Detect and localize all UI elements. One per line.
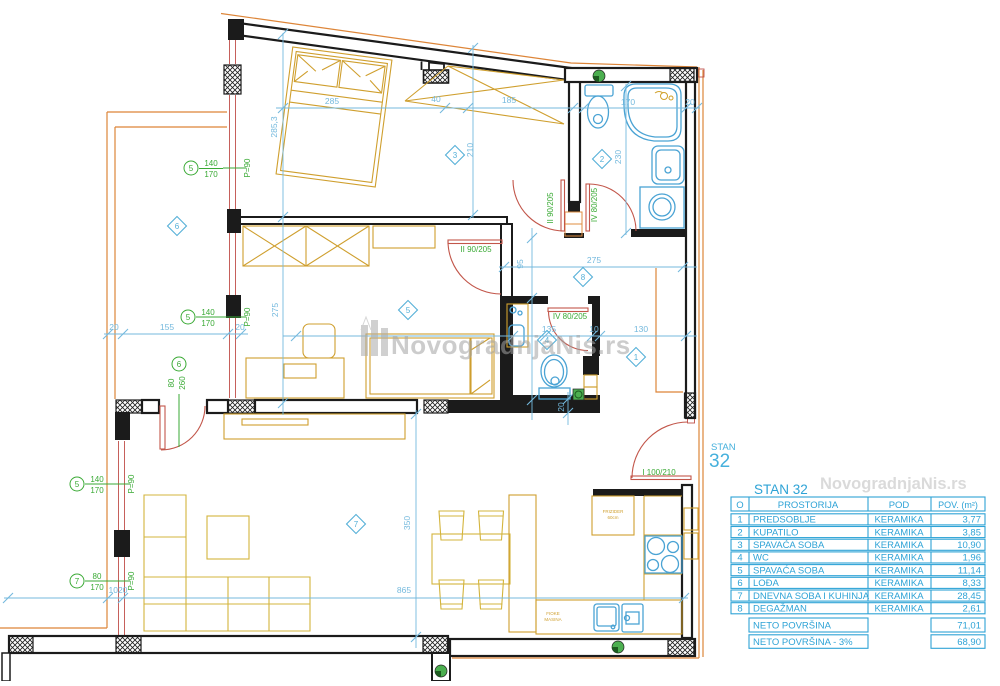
svg-text:IV 80/205: IV 80/205 bbox=[553, 312, 588, 321]
svg-text:95: 95 bbox=[515, 259, 525, 269]
svg-text:40: 40 bbox=[431, 94, 441, 104]
svg-text:3: 3 bbox=[737, 540, 742, 551]
svg-text:FIOKE: FIOKE bbox=[546, 611, 560, 616]
svg-text:275: 275 bbox=[270, 303, 280, 317]
svg-text:865: 865 bbox=[397, 585, 411, 595]
svg-text:170: 170 bbox=[621, 97, 635, 107]
svg-text:3,77: 3,77 bbox=[963, 515, 982, 526]
svg-text:IV 80/205: IV 80/205 bbox=[590, 187, 599, 222]
svg-text:KERAMIKA: KERAMIKA bbox=[874, 604, 924, 615]
svg-text:DEGAŽMAN: DEGAŽMAN bbox=[753, 604, 807, 615]
svg-text:P=90: P=90 bbox=[243, 158, 252, 177]
svg-text:5: 5 bbox=[75, 480, 80, 489]
svg-text:10,90: 10,90 bbox=[957, 540, 981, 551]
svg-text:20: 20 bbox=[556, 402, 566, 412]
svg-text:KERAMIKA: KERAMIKA bbox=[874, 578, 924, 589]
svg-text:FRIZIDER: FRIZIDER bbox=[603, 509, 624, 514]
svg-text:4: 4 bbox=[737, 553, 742, 564]
svg-text:7: 7 bbox=[354, 520, 359, 529]
svg-text:170: 170 bbox=[204, 170, 218, 179]
svg-text:170: 170 bbox=[90, 486, 104, 495]
svg-text:68,90: 68,90 bbox=[957, 637, 981, 648]
svg-text:155: 155 bbox=[160, 322, 174, 332]
svg-text:1,96: 1,96 bbox=[963, 553, 982, 564]
svg-text:6: 6 bbox=[177, 360, 182, 369]
svg-text:5: 5 bbox=[406, 306, 411, 315]
svg-text:NETO POVRŠINA: NETO POVRŠINA bbox=[753, 621, 832, 632]
svg-text:71,01: 71,01 bbox=[957, 621, 981, 632]
svg-text:8,33: 8,33 bbox=[963, 578, 982, 589]
svg-text:185: 185 bbox=[502, 95, 516, 105]
svg-text:5: 5 bbox=[189, 164, 194, 173]
svg-text:28,45: 28,45 bbox=[957, 591, 981, 602]
svg-text:SPAVAĆA SOBA: SPAVAĆA SOBA bbox=[753, 565, 825, 576]
svg-text:32: 32 bbox=[709, 451, 730, 472]
svg-text:KERAMIKA: KERAMIKA bbox=[874, 565, 924, 576]
svg-text:3,85: 3,85 bbox=[963, 527, 982, 538]
svg-text:MASINA: MASINA bbox=[544, 617, 561, 622]
svg-text:NovogradnjaNis.rs: NovogradnjaNis.rs bbox=[391, 330, 631, 360]
svg-text:7: 7 bbox=[75, 577, 80, 586]
svg-text:6: 6 bbox=[737, 578, 742, 589]
svg-text:2: 2 bbox=[600, 155, 605, 164]
svg-text:NovogradnjaNis.rs: NovogradnjaNis.rs bbox=[820, 475, 967, 493]
svg-text:6: 6 bbox=[175, 222, 180, 231]
svg-text:350: 350 bbox=[402, 516, 412, 530]
svg-text:1020: 1020 bbox=[109, 585, 128, 595]
svg-text:PROSTORIJA: PROSTORIJA bbox=[778, 500, 839, 511]
svg-text:P=90: P=90 bbox=[243, 307, 252, 326]
svg-text:POV. (m²): POV. (m²) bbox=[938, 500, 978, 510]
svg-text:LOĐA: LOĐA bbox=[753, 578, 780, 589]
svg-text:260: 260 bbox=[178, 376, 187, 390]
svg-text:PREDSOBLJE: PREDSOBLJE bbox=[753, 515, 816, 526]
svg-text:WC: WC bbox=[753, 553, 769, 564]
svg-text:KUPATILO: KUPATILO bbox=[753, 527, 799, 538]
svg-text:2: 2 bbox=[737, 527, 742, 538]
svg-text:SPAVAĆA SOBA: SPAVAĆA SOBA bbox=[753, 540, 825, 551]
svg-text:5: 5 bbox=[186, 313, 191, 322]
svg-text:275: 275 bbox=[587, 255, 601, 265]
svg-text:170: 170 bbox=[201, 319, 215, 328]
svg-text:DNEVNA SOBA I KUHINJA: DNEVNA SOBA I KUHINJA bbox=[753, 591, 870, 602]
svg-text:210: 210 bbox=[465, 143, 475, 157]
svg-text:O: O bbox=[736, 500, 743, 511]
svg-text:170: 170 bbox=[90, 583, 104, 592]
svg-text:3: 3 bbox=[453, 151, 458, 160]
svg-text:80: 80 bbox=[93, 572, 102, 581]
svg-text:230: 230 bbox=[613, 150, 623, 164]
svg-text:2,61: 2,61 bbox=[963, 604, 982, 615]
svg-text:P=90: P=90 bbox=[127, 474, 136, 493]
svg-text:20: 20 bbox=[685, 97, 695, 107]
svg-text:KERAMIKA: KERAMIKA bbox=[874, 527, 924, 538]
svg-text:140: 140 bbox=[90, 475, 104, 484]
svg-text:1: 1 bbox=[634, 353, 639, 362]
svg-text:P=90: P=90 bbox=[127, 571, 136, 590]
svg-text:KERAMIKA: KERAMIKA bbox=[874, 540, 924, 551]
svg-text:130: 130 bbox=[634, 324, 648, 334]
svg-text:8: 8 bbox=[737, 604, 742, 615]
svg-text:11,14: 11,14 bbox=[958, 565, 981, 576]
svg-text:285,3: 285,3 bbox=[269, 116, 279, 138]
svg-text:KERAMIKA: KERAMIKA bbox=[874, 591, 924, 602]
svg-text:II 90/205: II 90/205 bbox=[460, 245, 492, 254]
svg-text:KERAMIKA: KERAMIKA bbox=[874, 553, 924, 564]
svg-text:7: 7 bbox=[737, 591, 742, 602]
svg-text:I 100/210: I 100/210 bbox=[642, 468, 676, 477]
svg-text:POD: POD bbox=[889, 500, 910, 511]
svg-text:60cm: 60cm bbox=[607, 515, 618, 520]
svg-text:5: 5 bbox=[737, 565, 742, 576]
svg-text:NETO POVRŠINA - 3%: NETO POVRŠINA - 3% bbox=[753, 637, 853, 648]
svg-text:20: 20 bbox=[109, 322, 119, 332]
svg-text:II 90/205: II 90/205 bbox=[546, 192, 555, 224]
svg-text:8: 8 bbox=[581, 273, 586, 282]
svg-text:285: 285 bbox=[325, 96, 339, 106]
svg-text:1: 1 bbox=[737, 515, 742, 526]
svg-text:80: 80 bbox=[167, 378, 176, 387]
svg-text:KERAMIKA: KERAMIKA bbox=[874, 515, 924, 526]
svg-text:140: 140 bbox=[201, 308, 215, 317]
svg-text:STAN 32: STAN 32 bbox=[754, 482, 808, 497]
svg-text:140: 140 bbox=[204, 159, 218, 168]
